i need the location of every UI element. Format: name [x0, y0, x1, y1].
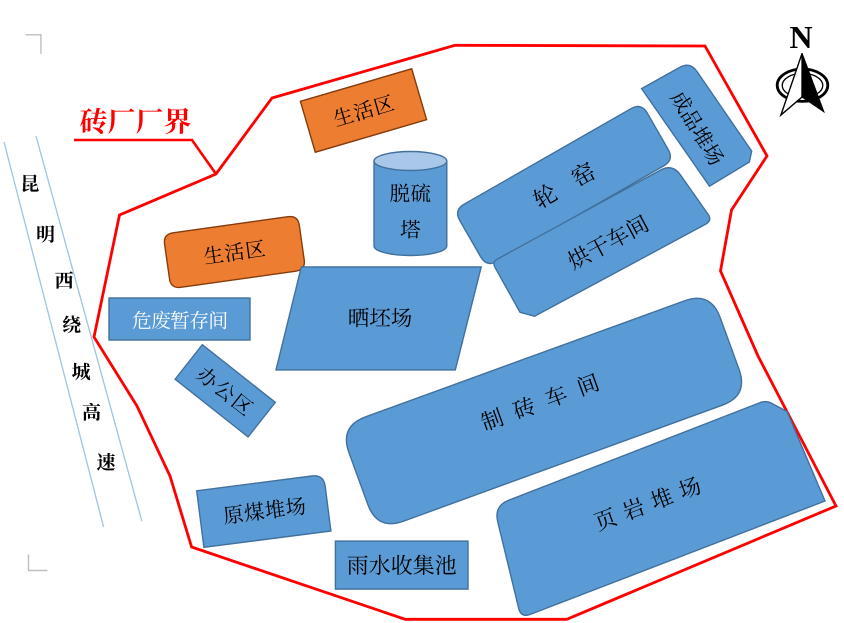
- svg-text:N: N: [789, 19, 812, 55]
